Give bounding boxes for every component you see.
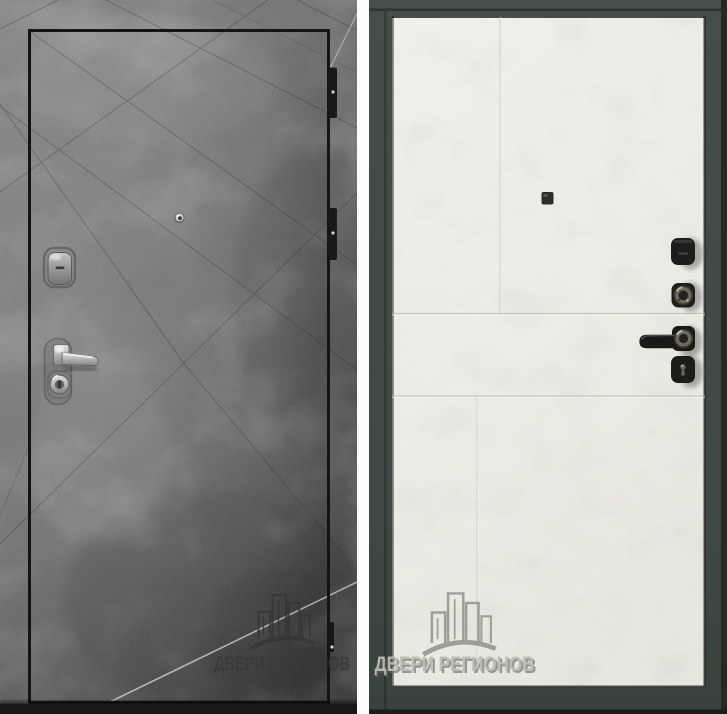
svg-text:ДВЕРИ РЕГИОНОВ: ДВЕРИ РЕГИОНОВ (375, 653, 535, 676)
svg-text:ДВЕРИ РЕГИОНОВ: ДВЕРИ РЕГИОНОВ (214, 654, 350, 675)
